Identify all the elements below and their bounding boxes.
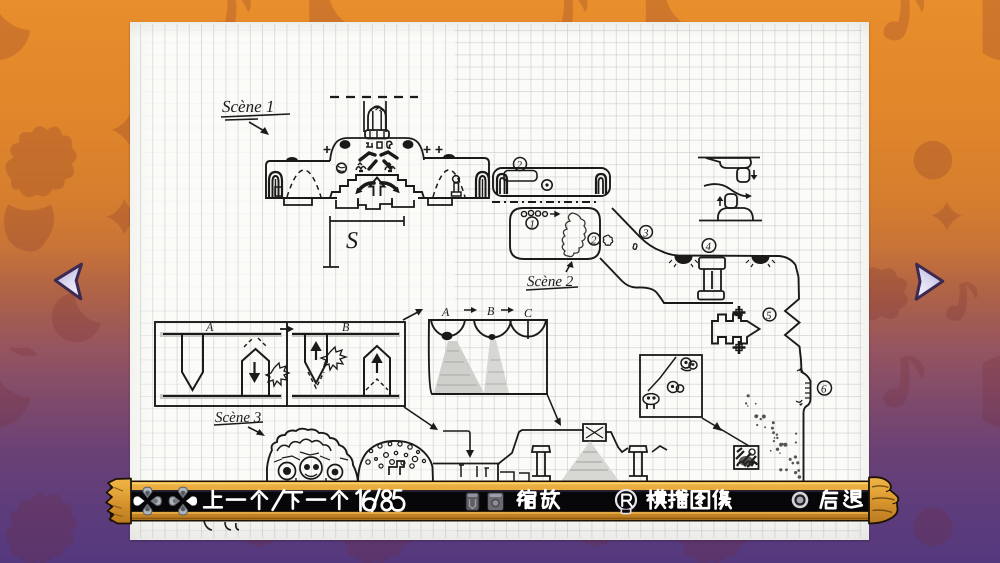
svg-text:2: 2 xyxy=(591,235,597,247)
svg-text:Scène 1: Scène 1 xyxy=(222,97,274,116)
svg-text:C: C xyxy=(524,306,533,320)
svg-text:4: 4 xyxy=(706,241,712,253)
svg-text:B: B xyxy=(342,320,350,334)
svg-text:1: 1 xyxy=(530,219,536,231)
svg-text:S: S xyxy=(346,228,358,254)
svg-text:5: 5 xyxy=(766,310,772,322)
svg-text:6: 6 xyxy=(821,384,827,396)
svg-text:A: A xyxy=(441,305,450,319)
svg-text:A: A xyxy=(205,320,214,334)
svg-text:B: B xyxy=(487,304,495,318)
svg-text:3: 3 xyxy=(642,228,649,240)
